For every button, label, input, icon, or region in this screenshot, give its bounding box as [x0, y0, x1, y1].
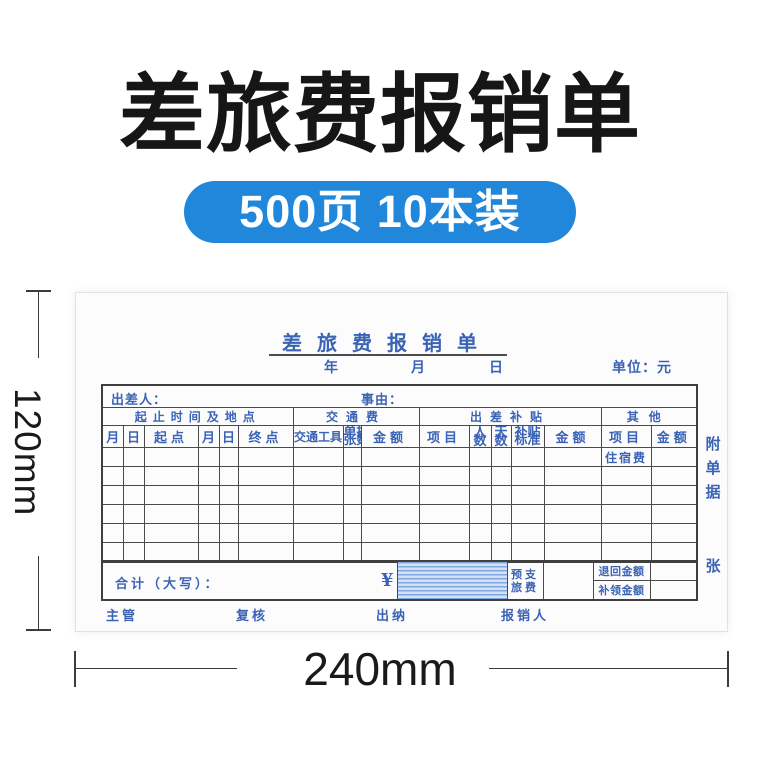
col-origin: 起点 — [144, 426, 198, 448]
signature-claimant: 报销人 — [501, 605, 549, 624]
lodging-fee-cell: 住宿费 — [601, 448, 651, 467]
date-day-label: 日 — [489, 357, 503, 377]
signature-cashier: 出纳 — [376, 605, 408, 624]
table-row: 住宿费 — [102, 448, 697, 467]
supplement-amount-cell — [650, 581, 697, 601]
col-receipt-count: 单据张数 — [343, 426, 361, 448]
yen-symbol: ¥ — [381, 570, 394, 591]
height-dimension-label: 120mm — [6, 388, 48, 548]
col-allowance-standard: 补贴标准 — [511, 426, 544, 448]
table-row — [102, 486, 697, 505]
unit-label: 单位：元 — [612, 357, 672, 377]
totals-row: 合计（大写）： ¥ 预支 旅费 退回金额 补领金额 — [101, 560, 698, 601]
reason-label: 事由： — [361, 389, 403, 408]
width-dimension-label: 240mm — [278, 642, 482, 696]
product-badge: 500页 10本装 — [184, 181, 576, 243]
amount-striped-cell — [397, 561, 507, 600]
col-day2: 日 — [219, 426, 238, 448]
traveler-label: 出差人： — [111, 389, 167, 408]
table-row — [102, 505, 697, 524]
group-header-other: 其他 — [601, 408, 697, 426]
total-label: 合计（大写）： — [115, 573, 221, 592]
width-dim-right-segment — [489, 668, 727, 669]
col-days-count: 天数 — [491, 426, 511, 448]
refund-label: 退回金额 — [593, 561, 650, 581]
height-dim-bottom-segment — [38, 556, 39, 630]
col-other-item: 项目 — [601, 426, 651, 448]
col-month1: 月 — [102, 426, 123, 448]
form-paper: 差旅费报销单 年 月 日 单位：元 出差人： 事由： 起止时间及地点 交通费 — [75, 292, 728, 632]
col-month2: 月 — [198, 426, 219, 448]
col-day1: 日 — [123, 426, 144, 448]
form-title-underline — [269, 354, 507, 356]
height-dim-top-segment — [38, 292, 39, 358]
form-title: 差旅费报销单 — [237, 327, 537, 356]
product-image: 差旅费报销单 500页 10本装 120mm 240mm 差旅费报销单 年 月 … — [0, 0, 760, 760]
product-title: 差旅费报销单 — [0, 44, 760, 169]
col-destination: 终点 — [238, 426, 293, 448]
refund-amount-cell — [650, 561, 697, 581]
width-dim-left-bar — [74, 651, 76, 687]
col-other-amount: 金额 — [651, 426, 697, 448]
expense-table: 出差人： 事由： 起止时间及地点 交通费 出差补贴 其他 月 日 起点 月 日 … — [101, 384, 698, 563]
col-people-count: 人数 — [469, 426, 491, 448]
traveler-reason-row: 出差人： 事由： — [102, 385, 697, 408]
group-header-time-place: 起止时间及地点 — [102, 408, 293, 426]
signature-reviewer: 复核 — [236, 605, 268, 624]
group-header-allowance: 出差补贴 — [419, 408, 601, 426]
col-allowance-item: 项目 — [419, 426, 469, 448]
table-row — [102, 524, 697, 543]
date-year-label: 年 — [324, 357, 338, 377]
date-month-label: 月 — [411, 357, 425, 377]
height-dim-bottom-bar — [26, 629, 51, 631]
advance-travel-label: 预支 旅费 — [507, 561, 543, 600]
width-dim-right-bar — [727, 651, 729, 687]
advance-amount-cell — [543, 561, 593, 600]
group-header-transport: 交通费 — [293, 408, 419, 426]
width-dim-left-segment — [76, 668, 237, 669]
col-transport-amount: 金额 — [361, 426, 419, 448]
attachment-sheets-label: 张 — [704, 555, 722, 576]
total-cell: 合计（大写）： ¥ — [102, 561, 397, 600]
col-allowance-amount: 金额 — [544, 426, 601, 448]
supplement-label: 补领金额 — [593, 581, 650, 601]
table-row — [102, 467, 697, 486]
col-vehicle: 交通工具 — [293, 426, 343, 448]
signature-supervisor: 主管 — [106, 605, 138, 624]
